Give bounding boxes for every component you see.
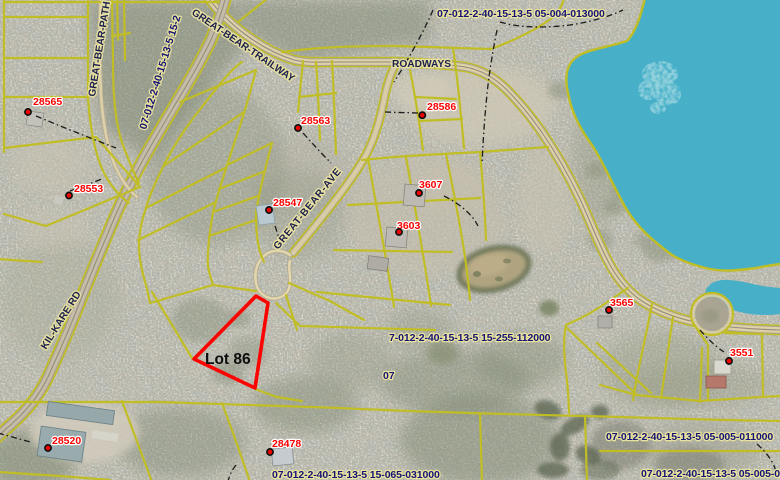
svg-text:28553: 28553 bbox=[74, 183, 103, 195]
svg-text:3565: 3565 bbox=[610, 297, 634, 309]
svg-text:Lot 86: Lot 86 bbox=[205, 351, 251, 368]
svg-text:07: 07 bbox=[383, 370, 395, 382]
svg-text:7-012-2-40-15-13-5 15-255-1120: 7-012-2-40-15-13-5 15-255-112000 bbox=[389, 332, 551, 344]
svg-text:28586: 28586 bbox=[427, 101, 456, 113]
svg-text:28563: 28563 bbox=[301, 115, 330, 127]
svg-text:07-012-2-40-15-13-5 05-004-013: 07-012-2-40-15-13-5 05-004-013000 bbox=[437, 8, 605, 20]
svg-text:28565: 28565 bbox=[33, 96, 62, 108]
svg-text:07-012-2-40-15-13-5 15-065-031: 07-012-2-40-15-13-5 15-065-031000 bbox=[272, 469, 440, 480]
svg-text:28478: 28478 bbox=[272, 438, 301, 450]
svg-text:07-012-2-40-15-13-5 05-005-011: 07-012-2-40-15-13-5 05-005-0110 bbox=[641, 468, 780, 480]
svg-text:3607: 3607 bbox=[419, 179, 443, 191]
svg-text:3551: 3551 bbox=[730, 347, 754, 359]
svg-text:07-012-2-40-15-13-5 05-005-011: 07-012-2-40-15-13-5 05-005-011000 bbox=[606, 431, 773, 443]
svg-text:28547: 28547 bbox=[273, 197, 302, 209]
svg-text:28520: 28520 bbox=[52, 435, 81, 447]
svg-text:ROADWAYS: ROADWAYS bbox=[392, 59, 451, 70]
